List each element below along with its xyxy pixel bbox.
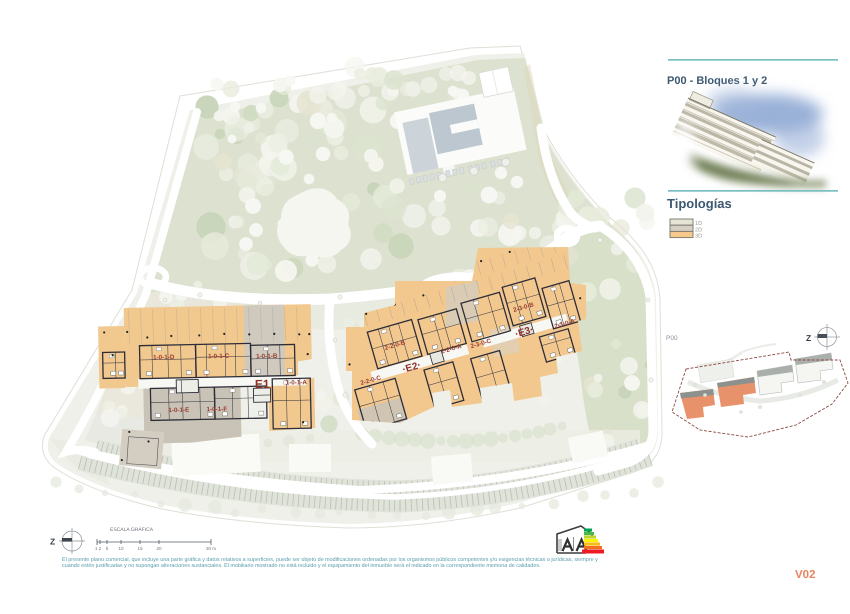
svg-text:1-0-1-E: 1-0-1-E: [168, 407, 189, 414]
svg-text:Z: Z: [50, 537, 55, 547]
svg-text:P00 - Bloques 1 y 2: P00 - Bloques 1 y 2: [667, 75, 767, 87]
svg-text:1-0-1-D: 1-0-1-D: [153, 354, 175, 361]
svg-text:1 2: 1 2: [95, 546, 102, 551]
svg-text:ESCALA GRÁFICA: ESCALA GRÁFICA: [110, 526, 154, 533]
svg-text:3D: 3D: [695, 234, 702, 240]
svg-text:P00: P00: [666, 335, 678, 342]
svg-text:1-0-1-B: 1-0-1-B: [256, 353, 278, 360]
svg-text:E1: E1: [255, 377, 270, 391]
svg-text:30 m: 30 m: [206, 546, 216, 551]
svg-text:Tipologías: Tipologías: [667, 196, 732, 211]
svg-text:cuando estén justificadas y no: cuando estén justificadas y no supongan …: [62, 563, 541, 569]
svg-text:1-0-1-A: 1-0-1-A: [286, 379, 308, 386]
svg-text:1D: 1D: [695, 221, 702, 227]
svg-text:2D: 2D: [695, 227, 702, 233]
svg-text:1-0-1-F: 1-0-1-F: [206, 406, 227, 413]
svg-text:10: 10: [118, 546, 124, 551]
svg-text:Z: Z: [806, 333, 811, 343]
svg-text:15: 15: [137, 546, 143, 551]
svg-text:V02: V02: [795, 569, 815, 581]
svg-text:1-0-1-C: 1-0-1-C: [208, 353, 230, 360]
svg-text:20: 20: [156, 546, 162, 551]
